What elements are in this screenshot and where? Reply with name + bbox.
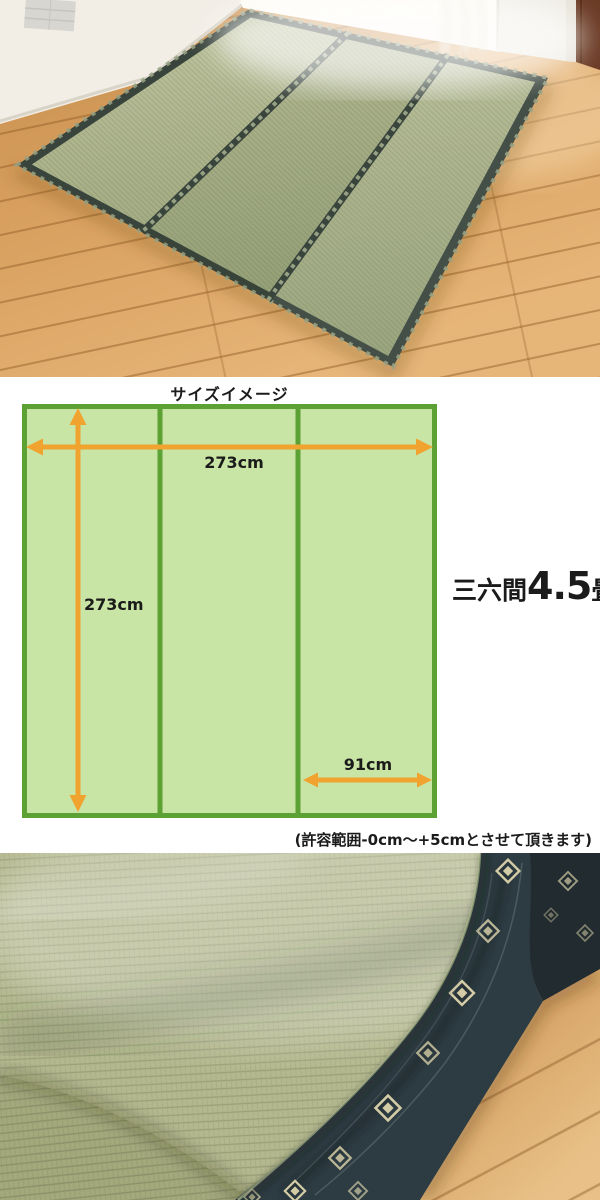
tolerance-note: (許容範囲-0cm〜+5cmとさせて頂きます) bbox=[295, 829, 592, 850]
size-name: 三六間 4.5 畳 bbox=[452, 567, 600, 605]
wall-panel bbox=[24, 0, 76, 31]
size-name-prefix: 三六間 bbox=[452, 578, 527, 603]
product-page: サイズイメージ bbox=[0, 0, 600, 1200]
height-dimension-label: 273cm bbox=[84, 595, 144, 614]
size-name-value: 4.5 bbox=[527, 567, 591, 605]
fabric-closeup-photo bbox=[0, 853, 600, 1200]
panel-width-label: 91cm bbox=[308, 755, 428, 774]
width-dimension-label: 273cm bbox=[164, 453, 304, 472]
size-diagram: サイズイメージ bbox=[0, 377, 600, 853]
room-photo-illustration bbox=[0, 0, 600, 377]
room-photo bbox=[0, 0, 600, 377]
fabric-closeup-illustration bbox=[0, 853, 600, 1200]
size-name-unit: 畳 bbox=[591, 578, 600, 603]
size-diagram-canvas bbox=[0, 377, 600, 853]
